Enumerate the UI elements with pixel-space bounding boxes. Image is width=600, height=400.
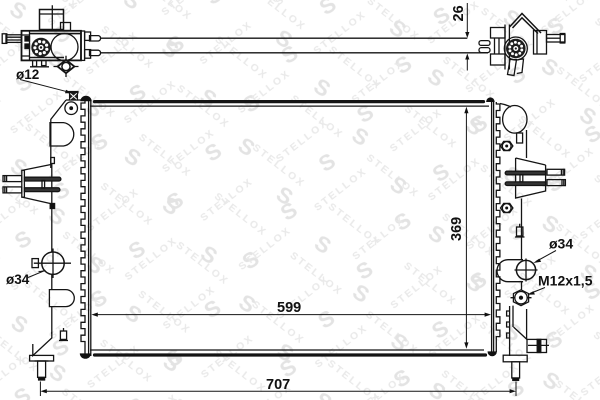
svg-text:ø12: ø12 <box>16 67 39 82</box>
svg-text:599: 599 <box>277 300 301 316</box>
svg-text:ø34: ø34 <box>6 272 30 287</box>
svg-text:369: 369 <box>449 217 465 241</box>
svg-text:707: 707 <box>266 377 290 393</box>
svg-text:ø34: ø34 <box>549 236 573 252</box>
svg-text:26: 26 <box>451 5 467 21</box>
svg-text:M12x1,5: M12x1,5 <box>538 273 593 289</box>
